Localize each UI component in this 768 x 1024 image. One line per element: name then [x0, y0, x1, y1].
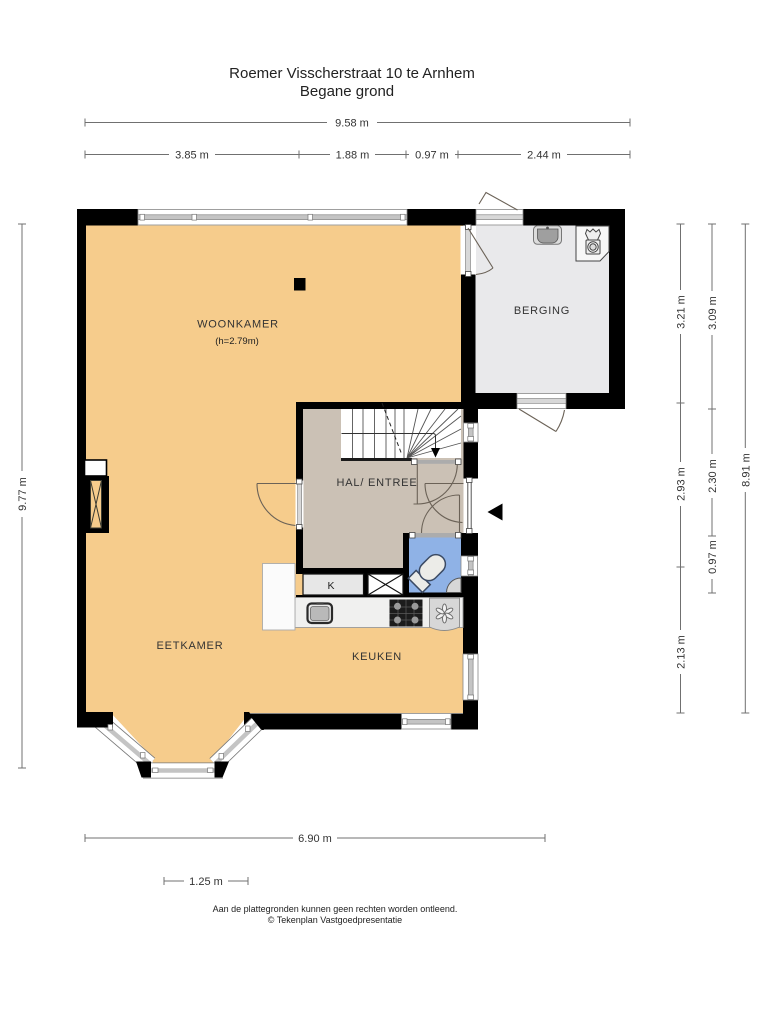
svg-text:EETKAMER: EETKAMER: [157, 640, 224, 652]
svg-text:8.91 m: 8.91 m: [740, 453, 752, 487]
svg-text:3.21 m: 3.21 m: [676, 295, 688, 329]
svg-text:BERGING: BERGING: [514, 305, 570, 317]
svg-text:WOONKAMER: WOONKAMER: [197, 319, 279, 331]
svg-text:HAL/ ENTREE: HAL/ ENTREE: [337, 477, 418, 489]
svg-text:2.13 m: 2.13 m: [676, 635, 688, 669]
svg-text:K: K: [327, 580, 334, 592]
svg-text:3.09 m: 3.09 m: [707, 296, 719, 330]
svg-text:1.25 m: 1.25 m: [189, 876, 223, 888]
svg-text:(h=2.79m): (h=2.79m): [215, 336, 259, 347]
svg-text:Aan de plattegronden kunnen ge: Aan de plattegronden kunnen geen rechten…: [213, 904, 458, 914]
svg-text:9.58 m: 9.58 m: [335, 118, 369, 130]
svg-text:Begane grond: Begane grond: [300, 83, 394, 100]
svg-text:© Tekenplan Vastgoedpresentati: © Tekenplan Vastgoedpresentatie: [268, 915, 402, 925]
svg-text:0.97 m: 0.97 m: [415, 150, 449, 162]
svg-text:2.44 m: 2.44 m: [527, 150, 561, 162]
svg-text:3.85 m: 3.85 m: [175, 150, 209, 162]
svg-text:2.93 m: 2.93 m: [676, 467, 688, 501]
svg-text:Roemer Visscherstraat 10 te Ar: Roemer Visscherstraat 10 te Arnhem: [229, 65, 475, 82]
svg-text:1.88 m: 1.88 m: [336, 150, 370, 162]
svg-text:6.90 m: 6.90 m: [298, 833, 332, 845]
svg-text:KEUKEN: KEUKEN: [352, 651, 402, 663]
svg-text:9.77 m: 9.77 m: [17, 477, 29, 511]
svg-text:2.30 m: 2.30 m: [707, 459, 719, 493]
svg-text:0.97 m: 0.97 m: [707, 540, 719, 574]
